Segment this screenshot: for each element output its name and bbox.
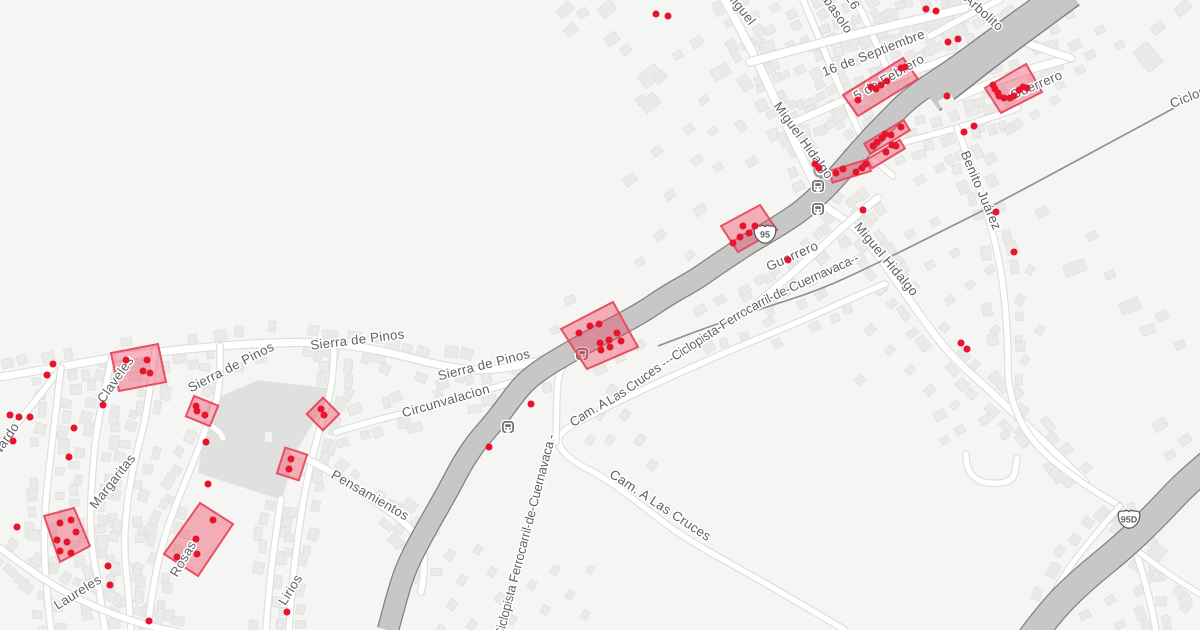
svg-text:95D: 95D — [1121, 514, 1138, 524]
svg-text:95: 95 — [760, 229, 770, 239]
